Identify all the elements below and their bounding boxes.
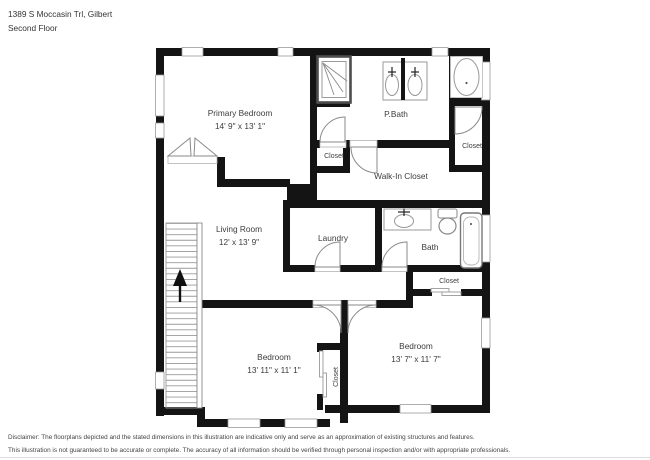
primary-double-door xyxy=(168,138,191,156)
address-line: 1389 S Moccasin Trl, Gilbert xyxy=(8,9,113,19)
label-bedroom-left-dims: 13' 11" x 11' 1" xyxy=(247,365,301,375)
shower xyxy=(318,57,351,103)
label-pbath: P.Bath xyxy=(384,109,408,119)
label-bedroom-right-dims: 13' 7" x 11' 7" xyxy=(391,354,441,364)
tr-closet-door xyxy=(455,107,482,134)
pbath-double-sink xyxy=(383,60,427,100)
label-mid-closet: Closet xyxy=(333,367,340,387)
label-living-room: Living Room xyxy=(216,224,262,234)
label-bath: Bath xyxy=(421,242,438,252)
bedroom-left-door xyxy=(313,305,341,333)
bath-tub xyxy=(461,213,483,268)
label-bedroom-right: Bedroom xyxy=(399,341,433,351)
bath-door xyxy=(382,242,407,267)
label-tr-closet: Closet xyxy=(462,143,482,150)
label-laundry: Laundry xyxy=(318,233,349,243)
pbath-closet-door xyxy=(320,117,345,142)
disclaimer-line1: Disclaimer: The floorplans depicted and … xyxy=(8,434,475,441)
floorplan-page: 1389 S Moccasin Trl, Gilbert Second Floo… xyxy=(0,0,650,460)
labels: 1389 S Moccasin Trl, Gilbert Second Floo… xyxy=(8,9,510,454)
label-hall-closet: Closet xyxy=(439,278,459,285)
label-living-room-dims: 12' x 13' 9" xyxy=(219,237,259,247)
stairs xyxy=(166,223,202,408)
bedroom-right-door xyxy=(348,305,376,333)
floorplan-svg: 1389 S Moccasin Trl, Gilbert Second Floo… xyxy=(0,0,650,460)
label-primary-bedroom-dims: 14' 9" x 13' 1" xyxy=(215,121,265,131)
label-pbath-closet: Closet xyxy=(324,153,344,160)
disclaimer-line2: This illustration is not guaranteed to b… xyxy=(8,447,510,454)
label-bedroom-left: Bedroom xyxy=(257,352,291,362)
page-bottom-rule xyxy=(0,457,650,458)
label-walk-in-closet: Walk-In Closet xyxy=(374,171,428,181)
walkin-closet-door xyxy=(351,147,377,173)
laundry-door xyxy=(315,242,340,267)
primary-double-door xyxy=(194,138,217,156)
label-primary-bedroom: Primary Bedroom xyxy=(208,108,273,118)
toilet xyxy=(438,209,457,234)
pbath-tub xyxy=(451,57,483,98)
floor-line: Second Floor xyxy=(8,23,58,33)
bath-sink xyxy=(384,209,431,231)
